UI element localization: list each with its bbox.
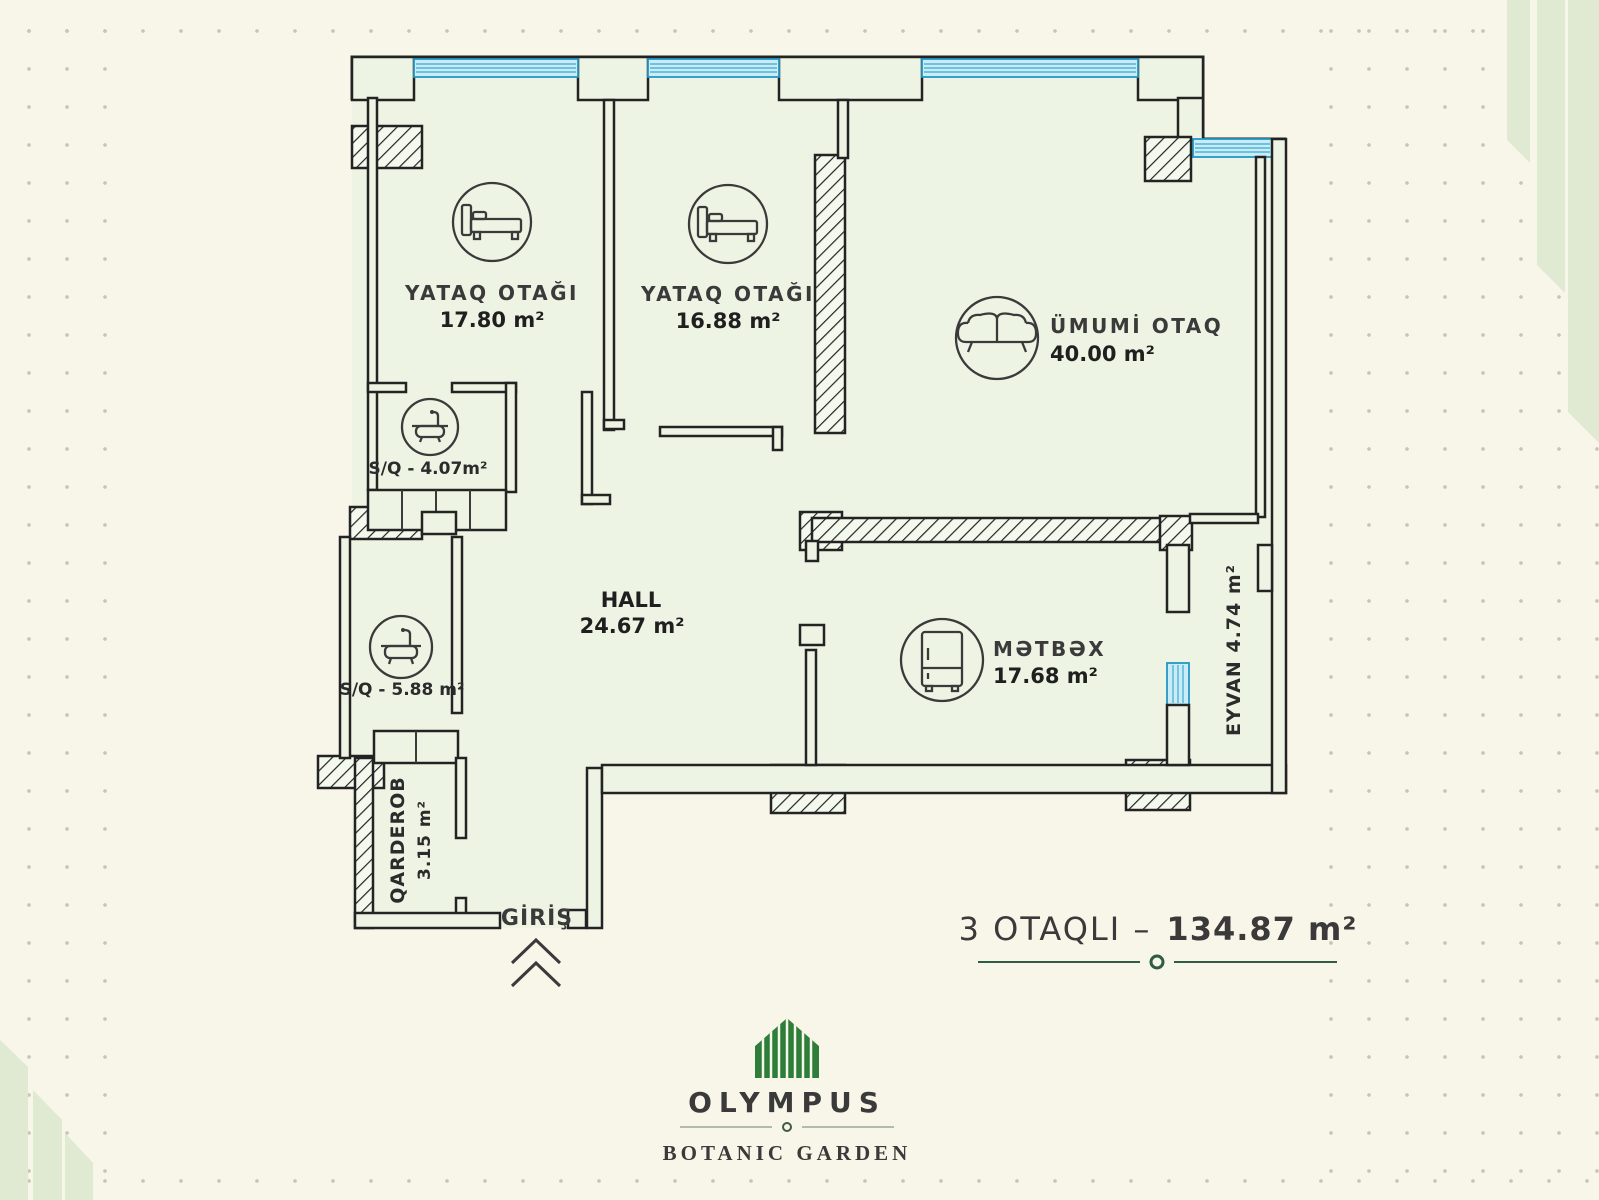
brand-divider <box>680 1123 894 1131</box>
hall-name: HALL <box>601 588 662 612</box>
window-top-2 <box>648 59 779 77</box>
brand-logo-icon <box>755 1012 819 1080</box>
living-name: ÜMUMİ OTAQ <box>1050 314 1223 338</box>
brand-tagline: BOTANIC GARDEN <box>663 1141 912 1165</box>
balcony-label: EYVAN 4.74 m² <box>1223 564 1245 736</box>
bath2-label: S/Q - 5.88 m² <box>340 680 465 700</box>
window-top-3 <box>922 59 1138 77</box>
building-silhouette-top-right <box>1507 0 1599 443</box>
bedroom1-area: 17.80 m² <box>440 308 545 332</box>
entrance-label: GİRİŞ <box>501 905 573 931</box>
bedroom2-area: 16.88 m² <box>676 309 781 333</box>
bath1-label: S/Q - 4.07m² <box>369 459 488 479</box>
footer-divider <box>978 956 1337 968</box>
chevron-up-icon <box>512 940 560 986</box>
page: YATAQ OTAĞI 17.80 m² YATAQ OTAĞI 16.88 m… <box>0 0 1599 1200</box>
bedroom2-name: YATAQ OTAĞI <box>640 282 815 306</box>
kitchen-area: 17.68 m² <box>993 664 1098 688</box>
apartment-total-area: 134.87 m² <box>1166 910 1357 948</box>
apartment-type: 3 OTAQLI – <box>959 910 1152 948</box>
floor-plan-canvas: YATAQ OTAĞI 17.80 m² YATAQ OTAĞI 16.88 m… <box>0 0 1599 1200</box>
wardrobe-name: QARDEROB <box>387 776 409 904</box>
apartment-summary: 3 OTAQLI – 134.87 m² <box>959 910 1358 948</box>
window-top-1 <box>414 59 578 77</box>
building-silhouette-bottom-left <box>0 1040 93 1200</box>
hall-area: 24.67 m² <box>580 614 685 638</box>
kitchen-name: MƏTBƏX <box>993 637 1106 661</box>
window-balcony-side <box>1167 663 1189 705</box>
brand-name: OLYMPUS <box>688 1086 886 1119</box>
bedroom1-name: YATAQ OTAĞI <box>404 281 579 305</box>
wardrobe-area: 3.15 m² <box>415 800 435 880</box>
window-balcony-top <box>1193 139 1272 157</box>
living-area: 40.00 m² <box>1050 342 1155 366</box>
